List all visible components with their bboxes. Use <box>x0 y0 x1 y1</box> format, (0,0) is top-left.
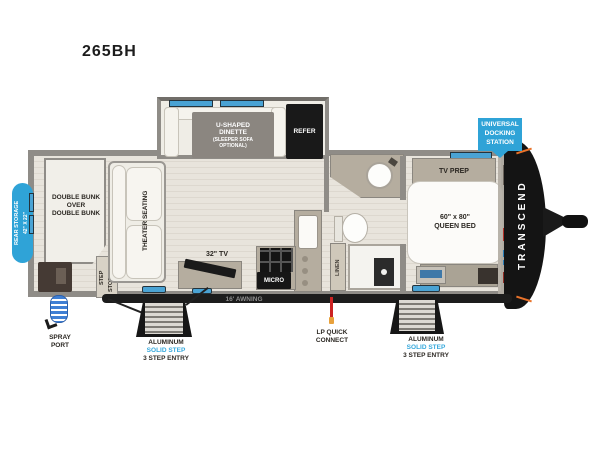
entry-left-label: ALUMINUM SOLID STEP 3 STEP ENTRY <box>128 339 204 362</box>
bedroom-wall <box>400 244 406 291</box>
entry-right-label: ALUMINUM SOLID STEP 3 STEP ENTRY <box>388 336 464 359</box>
bedroom-wall <box>400 156 406 200</box>
dinette-label: U-SHAPED <box>192 122 274 129</box>
bed-step <box>416 266 446 284</box>
slide-window-icon <box>220 100 264 107</box>
cap-accent <box>516 296 532 303</box>
dinette-sofa <box>164 107 179 157</box>
model-title: 265BH <box>82 42 137 61</box>
bath-wall <box>324 156 329 212</box>
awning-bar <box>102 294 512 303</box>
theater-seating-label: THEATER SEATING <box>142 165 150 277</box>
tv-prep-label: TV PREP <box>439 168 469 176</box>
dinette-label: OPTIONAL) <box>192 143 274 149</box>
seat-back <box>112 165 126 279</box>
linen-label: LINEN <box>335 246 342 290</box>
bed-size-label: 60" x 80" <box>408 214 502 222</box>
entry-steps-right <box>390 300 444 334</box>
refrigerator: REFER <box>286 104 323 159</box>
tv-label: 32" TV <box>194 251 240 259</box>
refer-label: REFER <box>293 128 315 135</box>
outside-kitchen-box <box>38 262 72 292</box>
dinette-label: DINETTE <box>192 129 274 136</box>
bunk-label: DOUBLE BUNK OVER DOUBLE BUNK <box>40 194 112 217</box>
rear-window-icon <box>29 193 34 212</box>
entry-door-window-icon <box>142 286 166 293</box>
lp-connect-label: LP QUICK CONNECT <box>302 329 362 345</box>
brand-label: TRANSCEND <box>517 155 528 295</box>
shower-door-icon <box>374 258 394 286</box>
dinette-table: U-SHAPED DINETTE (SLEEPER SOFA OPTIONAL) <box>192 112 274 158</box>
linen-closet: LINEN <box>330 243 346 291</box>
queen-bed: 60" x 80" QUEEN BED <box>407 181 503 264</box>
stove-icon <box>260 248 293 272</box>
bath-sink-icon <box>366 162 393 189</box>
toilet-icon <box>342 213 368 243</box>
outside-kitchen-window <box>56 268 66 284</box>
docking-station-badge: UNIVERSAL DOCKING STATION <box>478 118 522 151</box>
theater-seating <box>108 161 166 283</box>
rear-window-icon <box>29 215 34 234</box>
badge-pointer-icon <box>492 151 508 158</box>
lp-tip-icon <box>329 317 334 324</box>
spray-port-label: SPRAY PORT <box>36 334 84 350</box>
kitchen-sink <box>298 215 318 249</box>
front-cap: TRANSCEND <box>504 141 546 309</box>
counter-detail <box>302 280 308 286</box>
slide-window-icon <box>169 100 213 107</box>
hitch-coupler-icon <box>562 215 588 228</box>
front-cabinet <box>478 268 498 284</box>
rear-storage-label: REAR STORAGE <box>14 187 20 259</box>
counter-detail <box>302 256 308 262</box>
floorplan-image: 265BH REAR STORAGE 42" X 22" DOUBLE BUNK… <box>0 0 600 450</box>
micro-label: MICRO <box>264 278 284 284</box>
awning-label: 16' AWNING <box>204 296 284 304</box>
entry-door-window-icon <box>412 285 440 292</box>
lp-line-icon <box>330 297 333 318</box>
step-storage-label: STEP <box>99 259 106 297</box>
microwave: MICRO <box>257 272 291 289</box>
entry-steps-left <box>136 303 192 337</box>
counter-detail <box>302 268 308 274</box>
shower <box>348 244 402 290</box>
bed-label: QUEEN BED <box>408 223 502 231</box>
